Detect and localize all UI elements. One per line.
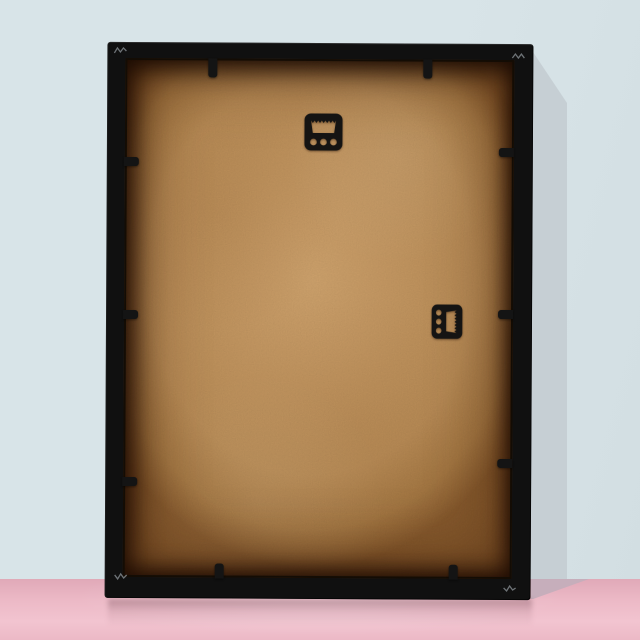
retainer-clip-top-left bbox=[208, 58, 217, 77]
corner-joint-mark-top-left bbox=[113, 46, 127, 55]
retainer-clip-top-right bbox=[423, 60, 432, 79]
retainer-clip-right-lower bbox=[497, 459, 512, 468]
sawtooth-hanger-top bbox=[303, 112, 344, 152]
retainer-clip-left-upper bbox=[124, 157, 139, 166]
corner-joint-mark-bottom-left bbox=[114, 572, 128, 581]
scene bbox=[0, 0, 640, 640]
retainer-clip-right-upper bbox=[499, 148, 514, 157]
corner-joint-mark-bottom-right bbox=[503, 584, 517, 593]
retainer-clip-left-lower bbox=[122, 477, 137, 486]
sawtooth-hanger-right bbox=[430, 304, 464, 340]
retainer-clip-left-middle bbox=[123, 310, 138, 319]
retainer-clip-right-middle bbox=[498, 310, 513, 319]
retainer-clip-bottom-left bbox=[215, 563, 224, 578]
retainer-clip-bottom-right bbox=[449, 565, 458, 580]
frame-floor-reflection bbox=[108, 599, 532, 633]
corner-joint-mark-top-right bbox=[511, 52, 525, 61]
picture-frame-back bbox=[105, 42, 534, 600]
